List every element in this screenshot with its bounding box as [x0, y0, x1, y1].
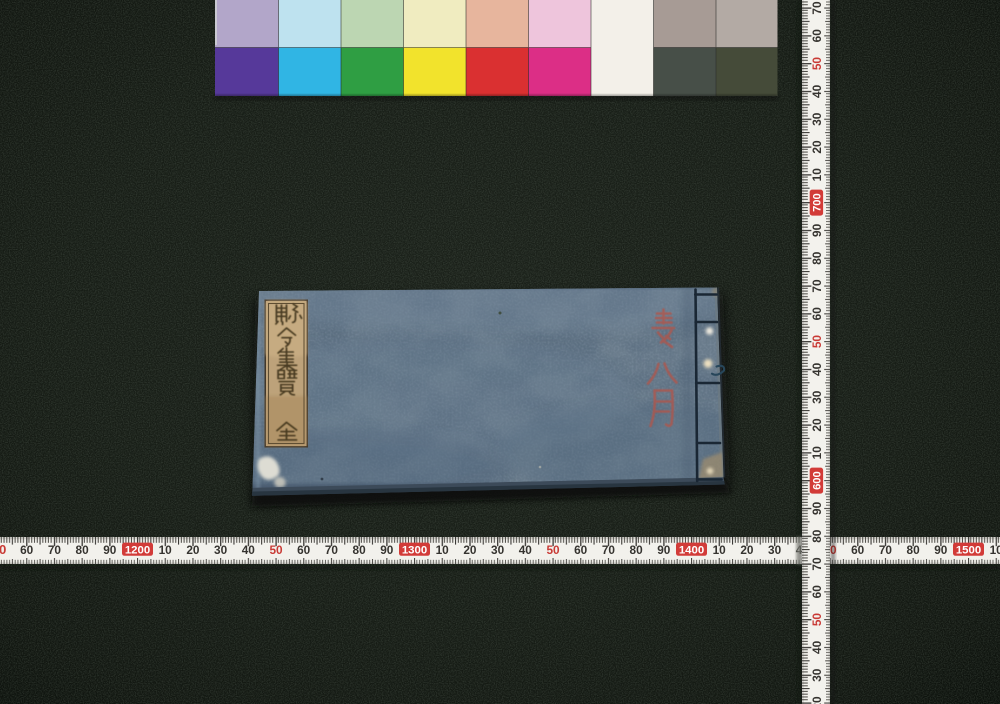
- svg-text:80: 80: [907, 543, 921, 557]
- svg-text:60: 60: [810, 29, 824, 43]
- svg-text:50: 50: [546, 543, 560, 557]
- svg-text:60: 60: [810, 307, 824, 321]
- svg-text:50: 50: [810, 57, 824, 71]
- svg-text:40: 40: [519, 543, 533, 557]
- svg-text:1400: 1400: [679, 545, 704, 557]
- svg-text:70: 70: [602, 543, 616, 557]
- svg-text:70: 70: [810, 1, 824, 15]
- svg-text:90: 90: [380, 543, 394, 557]
- svg-text:1300: 1300: [402, 545, 427, 557]
- svg-text:90: 90: [657, 543, 671, 557]
- svg-text:80: 80: [810, 529, 824, 543]
- svg-text:40: 40: [810, 362, 824, 376]
- svg-text:90: 90: [934, 543, 948, 557]
- svg-text:1200: 1200: [125, 545, 150, 557]
- svg-text:40: 40: [810, 640, 824, 654]
- svg-text:10: 10: [810, 446, 824, 460]
- svg-text:600: 600: [812, 471, 824, 490]
- svg-text:10: 10: [810, 168, 824, 182]
- svg-text:70: 70: [879, 543, 893, 557]
- svg-text:30: 30: [491, 543, 505, 557]
- svg-text:60: 60: [851, 543, 865, 557]
- svg-text:50: 50: [0, 542, 6, 557]
- svg-text:60: 60: [297, 543, 311, 557]
- svg-text:20: 20: [463, 543, 477, 557]
- svg-text:70: 70: [325, 543, 339, 557]
- svg-text:80: 80: [76, 543, 90, 557]
- svg-text:1500: 1500: [956, 545, 981, 557]
- svg-text:20: 20: [740, 543, 754, 557]
- svg-text:30: 30: [810, 390, 824, 404]
- svg-text:30: 30: [768, 543, 782, 557]
- svg-text:20: 20: [810, 696, 824, 704]
- svg-text:10: 10: [990, 543, 1000, 557]
- svg-text:30: 30: [810, 668, 824, 682]
- svg-text:20: 20: [186, 543, 200, 557]
- svg-text:40: 40: [242, 543, 256, 557]
- svg-text:20: 20: [810, 418, 824, 432]
- svg-text:20: 20: [810, 140, 824, 154]
- svg-text:70: 70: [810, 279, 824, 293]
- svg-text:40: 40: [810, 84, 824, 98]
- svg-text:10: 10: [436, 543, 450, 557]
- svg-text:90: 90: [103, 543, 117, 557]
- svg-text:90: 90: [810, 501, 824, 515]
- svg-text:10: 10: [159, 543, 173, 557]
- svg-text:50: 50: [810, 613, 824, 627]
- svg-text:60: 60: [20, 543, 34, 557]
- svg-text:90: 90: [810, 223, 824, 237]
- svg-text:70: 70: [48, 543, 62, 557]
- svg-text:80: 80: [810, 251, 824, 265]
- svg-text:50: 50: [269, 543, 283, 557]
- svg-text:50: 50: [810, 335, 824, 349]
- svg-text:60: 60: [810, 585, 824, 599]
- svg-text:10: 10: [713, 543, 727, 557]
- svg-text:60: 60: [574, 543, 588, 557]
- svg-text:80: 80: [630, 543, 644, 557]
- svg-text:70: 70: [810, 557, 824, 571]
- svg-text:700: 700: [812, 193, 824, 212]
- svg-text:30: 30: [214, 543, 228, 557]
- svg-text:80: 80: [353, 543, 367, 557]
- svg-text:30: 30: [810, 112, 824, 126]
